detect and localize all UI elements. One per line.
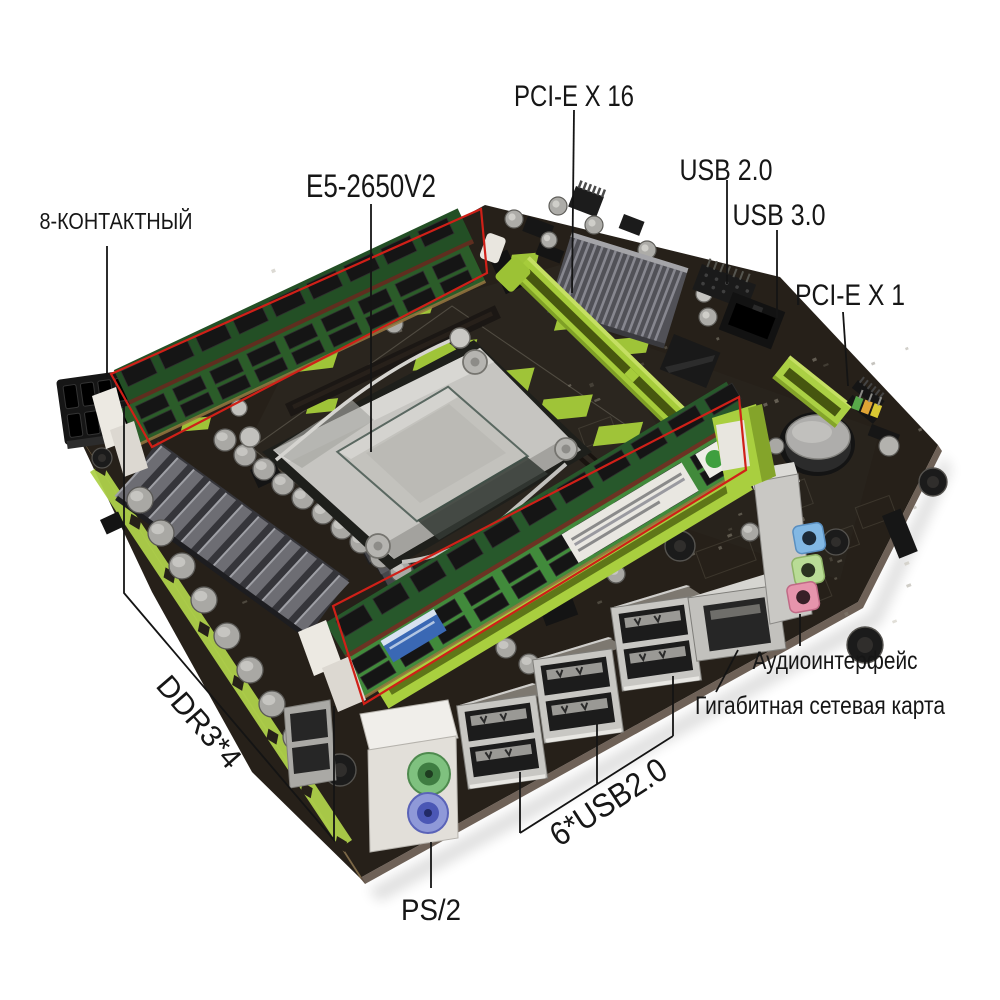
svg-text:E5-2650V2: E5-2650V2 [306,168,436,204]
svg-text:USB 3.0: USB 3.0 [733,199,826,232]
svg-text:USB 2.0: USB 2.0 [680,154,773,187]
svg-text:PCI-E X 16: PCI-E X 16 [514,80,634,113]
svg-text:8-КОНТАКТНЫЙ: 8-КОНТАКТНЫЙ [40,207,193,234]
svg-text:Гигабитная сетевая карта: Гигабитная сетевая карта [695,692,945,720]
svg-text:Аудиоинтерфейс: Аудиоинтерфейс [753,647,918,675]
svg-text:PS/2: PS/2 [401,894,461,927]
svg-text:PCI-E X 1: PCI-E X 1 [795,279,905,312]
